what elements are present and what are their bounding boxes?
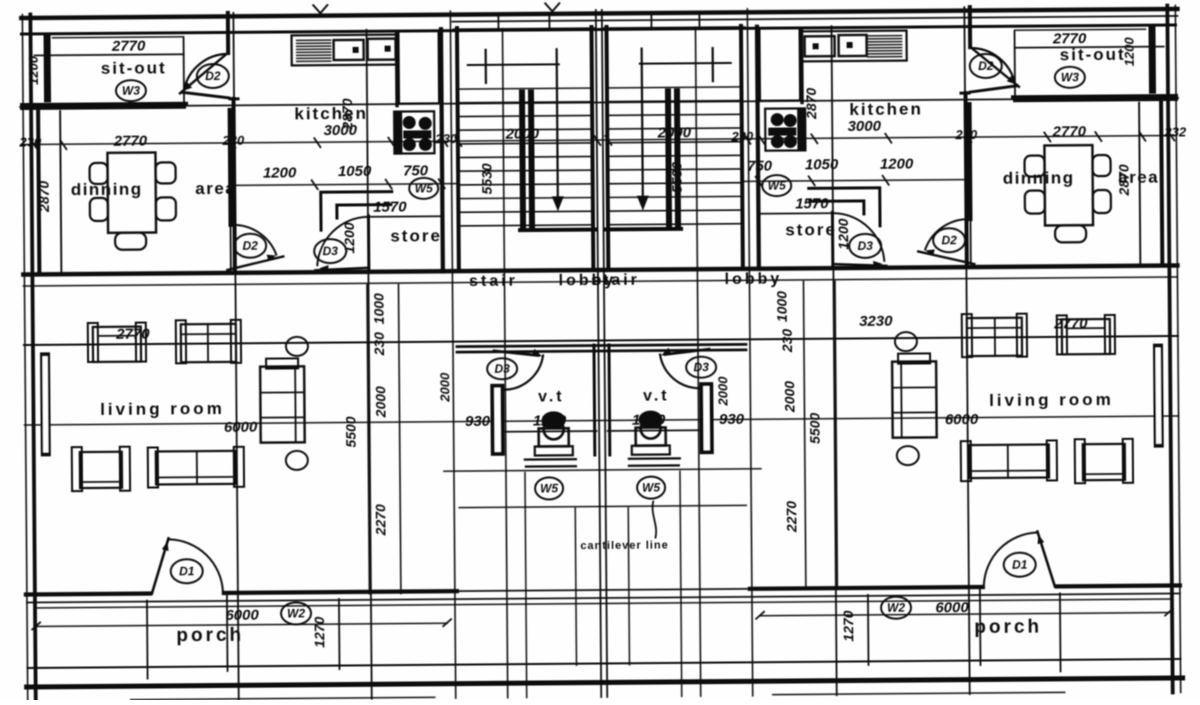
svg-text:store: store: [785, 220, 837, 239]
svg-text:v.t: v.t: [643, 387, 670, 404]
svg-text:5530: 5530: [669, 162, 685, 193]
svg-text:6000: 6000: [224, 419, 258, 436]
svg-text:1050: 1050: [338, 163, 372, 180]
svg-text:2870: 2870: [36, 181, 52, 213]
svg-text:6000: 6000: [945, 411, 979, 428]
svg-text:5500: 5500: [806, 412, 822, 443]
svg-text:2000: 2000: [781, 381, 797, 413]
svg-text:2000: 2000: [657, 124, 692, 141]
svg-text:930: 930: [465, 413, 491, 430]
svg-text:kitchen: kitchen: [849, 99, 923, 119]
svg-text:area: area: [195, 179, 236, 198]
svg-text:2770: 2770: [1052, 123, 1087, 140]
svg-text:2000: 2000: [715, 376, 730, 407]
svg-text:lobby: lobby: [725, 271, 783, 288]
svg-text:1570: 1570: [373, 199, 407, 216]
svg-text:2270: 2270: [372, 504, 388, 536]
svg-text:5500: 5500: [343, 416, 359, 447]
svg-text:D2: D2: [242, 239, 258, 253]
svg-text:230: 230: [371, 332, 387, 357]
svg-text:1200: 1200: [880, 156, 914, 173]
svg-text:kitchen: kitchen: [294, 104, 368, 124]
svg-text:W5: W5: [768, 179, 786, 193]
svg-text:1000: 1000: [774, 291, 790, 322]
svg-text:6000: 6000: [935, 599, 969, 616]
svg-text:1050: 1050: [805, 156, 839, 173]
svg-text:W2: W2: [887, 601, 905, 615]
svg-text:area: area: [1118, 168, 1159, 187]
svg-text:D1: D1: [1012, 558, 1028, 572]
svg-text:232: 232: [1163, 124, 1187, 139]
svg-text:5530: 5530: [479, 163, 495, 194]
svg-text:living room: living room: [100, 399, 225, 419]
svg-text:2770: 2770: [113, 133, 148, 150]
svg-text:2000: 2000: [372, 386, 388, 418]
svg-text:1200: 1200: [341, 222, 357, 253]
svg-text:2000: 2000: [437, 372, 452, 403]
svg-text:D3: D3: [693, 360, 709, 374]
svg-text:D1: D1: [179, 564, 195, 578]
svg-text:2770: 2770: [111, 38, 146, 55]
svg-text:porch: porch: [974, 617, 1042, 639]
svg-text:W2: W2: [287, 606, 305, 620]
svg-text:W3: W3: [122, 84, 140, 98]
svg-text:930: 930: [719, 411, 745, 428]
svg-text:W3: W3: [1061, 70, 1079, 84]
svg-text:2770: 2770: [1053, 315, 1088, 332]
svg-text:D2: D2: [941, 233, 957, 247]
svg-text:3000: 3000: [847, 118, 881, 135]
svg-text:3230: 3230: [859, 313, 893, 330]
svg-text:W5: W5: [540, 481, 558, 495]
svg-text:D3: D3: [322, 244, 338, 258]
svg-text:1000: 1000: [371, 293, 387, 324]
svg-text:cantilever line: cantilever line: [580, 539, 668, 552]
svg-text:W5: W5: [642, 481, 660, 495]
svg-text:230: 230: [730, 129, 754, 144]
svg-text:D3: D3: [857, 239, 873, 253]
svg-text:1270: 1270: [311, 616, 327, 647]
svg-text:dinning: dinning: [1003, 168, 1075, 188]
svg-text:1200: 1200: [26, 55, 41, 85]
svg-text:sit-out: sit-out: [101, 58, 167, 78]
svg-text:living room: living room: [989, 390, 1114, 410]
svg-text:store: store: [390, 226, 442, 245]
svg-text:W5: W5: [415, 181, 433, 195]
svg-text:6000: 6000: [225, 607, 259, 624]
svg-text:stair: stair: [469, 273, 518, 290]
svg-text:1200: 1200: [263, 164, 297, 181]
svg-text:D2: D2: [978, 59, 994, 73]
svg-text:2000: 2000: [505, 125, 540, 142]
svg-text:porch: porch: [176, 625, 244, 647]
svg-text:1270: 1270: [840, 610, 856, 641]
svg-text:750: 750: [747, 158, 773, 175]
svg-text:230: 230: [18, 134, 42, 149]
svg-text:stair: stair: [591, 272, 640, 289]
svg-text:2270: 2270: [783, 501, 799, 533]
svg-text:v.t: v.t: [538, 388, 565, 405]
svg-text:D3: D3: [494, 362, 510, 376]
svg-text:D2: D2: [205, 69, 221, 83]
svg-text:230: 230: [779, 329, 795, 354]
svg-text:2870: 2870: [339, 98, 355, 130]
svg-text:1570: 1570: [795, 195, 829, 212]
